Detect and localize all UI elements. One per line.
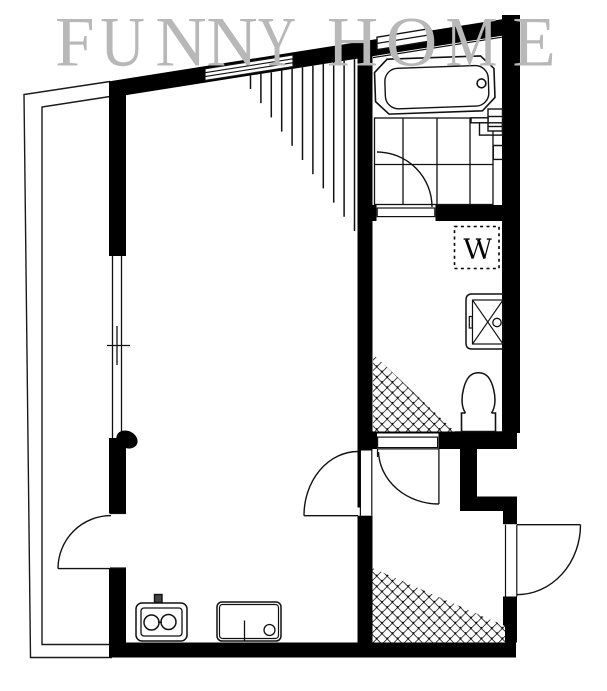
svg-text:E: E xyxy=(512,3,555,81)
svg-text:N: N xyxy=(155,3,206,81)
svg-text:Y: Y xyxy=(258,3,296,81)
svg-text:O: O xyxy=(386,3,437,81)
svg-text:F: F xyxy=(55,3,95,81)
svg-text:N: N xyxy=(206,3,257,81)
svg-text:M: M xyxy=(446,3,498,81)
svg-text:U: U xyxy=(100,3,145,81)
svg-text:H: H xyxy=(327,3,378,81)
